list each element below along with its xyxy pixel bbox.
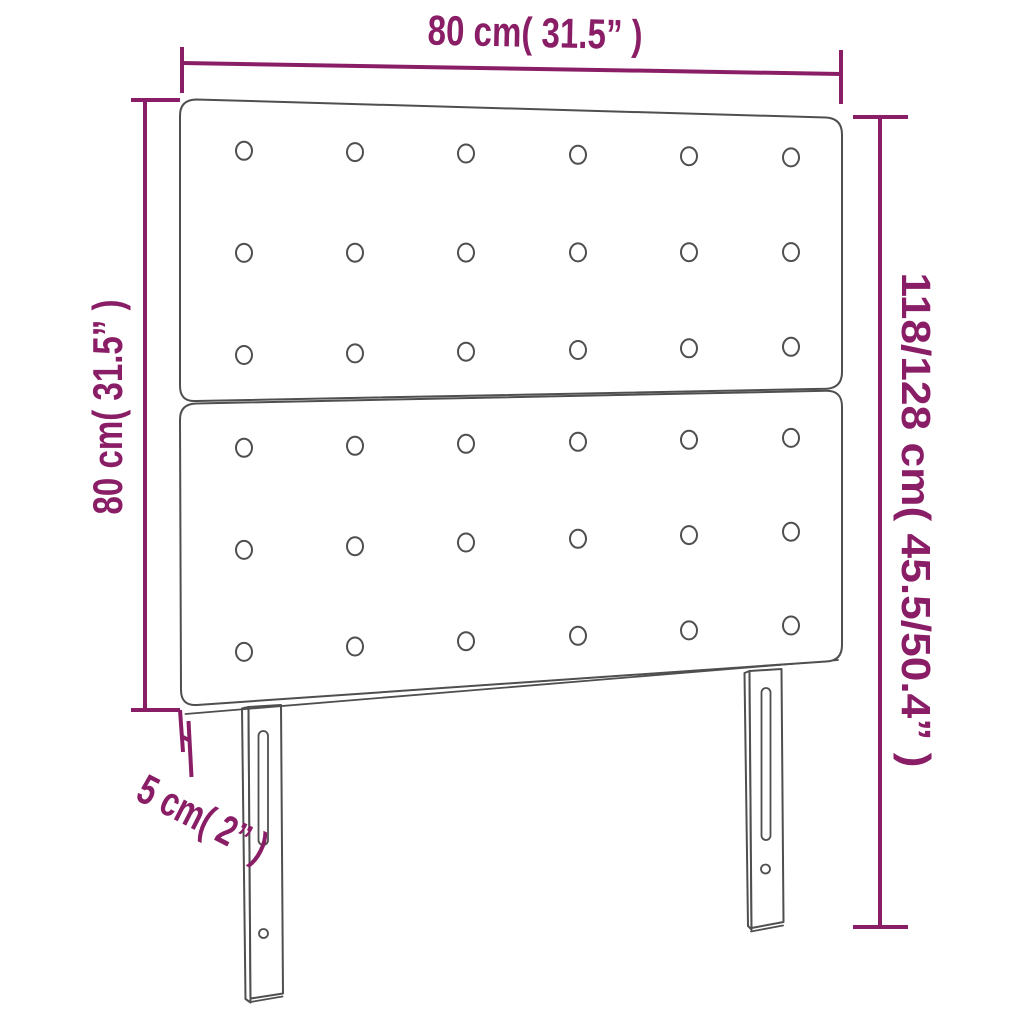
tufting-button — [783, 338, 799, 356]
upper-panel — [180, 100, 842, 402]
tufting-button — [458, 145, 474, 163]
tufting-button — [458, 534, 474, 552]
tufting-button — [458, 244, 474, 262]
depth-dimension-tick-front — [189, 721, 192, 777]
tufting-button — [570, 243, 586, 261]
tufting-button — [458, 343, 474, 361]
right-leg — [745, 669, 784, 932]
tufting-button — [681, 431, 697, 449]
tufting-button — [347, 143, 363, 161]
headboard-dimension-diagram: 80 cm( 31.5” ) 80 cm( 31.5” ) 118/128 cm… — [0, 0, 1024, 1024]
tufting-button — [681, 339, 697, 357]
tufting-button — [783, 617, 799, 635]
tufting-button — [681, 621, 697, 639]
tufting-button — [570, 627, 586, 645]
tufting-button — [783, 523, 799, 541]
tufting-button — [236, 244, 252, 262]
headboard — [180, 100, 842, 1003]
tufting-button — [783, 243, 799, 261]
tufting-button — [570, 433, 586, 451]
tufting-button — [783, 429, 799, 447]
tufting-button — [347, 244, 363, 262]
tufting-button — [458, 435, 474, 453]
tufting-button — [681, 526, 697, 544]
tufting-button — [347, 638, 363, 656]
tufting-button — [347, 344, 363, 362]
diagram-canvas: 80 cm( 31.5” ) 80 cm( 31.5” ) 118/128 cm… — [0, 0, 1024, 1024]
depth-dimension-tick-back — [180, 710, 183, 752]
tufting-button — [783, 148, 799, 166]
tufting-button — [347, 437, 363, 455]
lower-panel — [180, 391, 842, 705]
tufting-button — [236, 439, 252, 457]
panel-height-dimension-label: 80 cm( 31.5” ) — [84, 300, 131, 515]
width-dimension-label: 80 cm( 31.5” ) — [427, 7, 643, 59]
total-height-dimension: 118/128 cm( 45.5/50.4” ) — [853, 117, 939, 927]
tufting-button — [570, 530, 586, 548]
panel-height-dimension: 80 cm( 31.5” ) — [84, 100, 180, 710]
tufting-button — [236, 541, 252, 559]
tufting-button — [236, 346, 252, 364]
tufting-button — [236, 142, 252, 160]
right-leg-front-face — [750, 669, 784, 928]
width-dimension: 80 cm( 31.5” ) — [182, 7, 841, 104]
tufting-button — [570, 146, 586, 164]
tufting-button — [570, 341, 586, 359]
tufting-button — [458, 632, 474, 650]
tufting-button — [681, 243, 697, 261]
width-dimension-line — [182, 63, 841, 74]
tufting-button — [681, 147, 697, 165]
total-height-dimension-label: 118/128 cm( 45.5/50.4” ) — [893, 273, 939, 768]
tufting-button — [236, 643, 252, 661]
tufting-button — [347, 537, 363, 555]
